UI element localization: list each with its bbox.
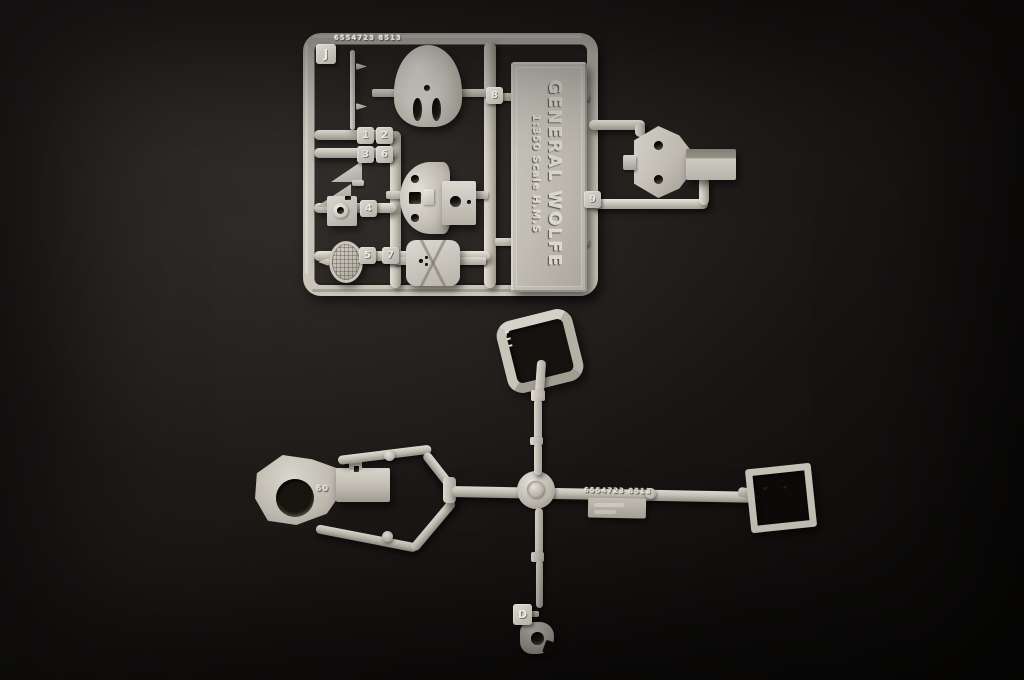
tab-number: 9 [589,194,596,205]
hatch-dot [419,259,423,263]
frame-hole [762,484,767,489]
vertical-arm-top2 [534,399,542,441]
barbette-slot [409,192,421,204]
sprue-gate [372,89,396,97]
tag-emboss-line [594,510,616,514]
runner-lower [592,199,708,209]
part-hatch [406,240,460,286]
barbette-step [423,189,434,205]
tab-number: 6 [381,149,388,160]
part-tab-4: 4 [360,200,377,217]
tab-number: 5 [364,250,371,261]
vertical-arm-bottom2 [536,560,543,608]
bracket-tab [623,155,636,170]
deck-hole [450,196,461,207]
sprue-d-mold-code: 6554723 8513 [584,486,652,495]
part-bracket-trough [686,149,736,180]
part-tab-5: 5 [359,247,376,264]
bracket-hole [654,175,663,184]
nameplate-subtitle: 1:350 Scale H.M.S [530,114,541,233]
vertical-arm-bottom1 [535,508,543,556]
barbette-hole [411,214,419,222]
sprue-j-mold-code: 6554723 8513 [334,34,402,42]
part-tab-8: 8 [486,87,503,104]
deck-dot [467,200,471,204]
runner-node [382,531,393,542]
frame-hole [782,483,787,488]
sprue-letter: J [324,47,328,61]
part-tab-6: 6 [376,146,393,163]
block-notch [354,466,359,472]
part-nameplate: GENERAL WOLFE 1:350 Scale H.M.S [511,62,587,292]
sprue-gate [460,89,486,97]
part-tab-3: 3 [357,146,374,163]
teardrop-part-number: 60 [316,484,329,493]
part-bracket [634,126,692,198]
cross-hub-boss [527,481,544,498]
hatch-dot [425,256,428,259]
hatch-dot [425,263,428,266]
barbette-hole [411,175,419,183]
loop-arm-lower-left [315,524,418,552]
clamp-hole [531,632,544,645]
material-tag [588,497,646,518]
part-block [336,468,390,502]
runner-node [384,450,395,461]
dome-slot [413,98,422,121]
nameplate-title: GENERAL WOLFE [544,80,564,268]
photo-of-model-kit-sprues: 6554723 8513 J 1 2 3 6 4 5 7 8 9 [0,0,1024,680]
tab-number: 4 [365,203,372,214]
part-square-frame [745,463,817,534]
sprue-gate [456,257,486,265]
part-mast-rod [350,50,355,130]
loop-arm-lower-right [410,498,457,552]
runner-lower-elbow [699,177,709,205]
sprue-d-letter-tab: D [513,604,532,625]
tab-number: 1 [362,130,369,141]
dome-hole [424,85,430,91]
part-tab-9: 9 [584,191,601,208]
part-tab-1: 1 [357,127,374,144]
tag-emboss-line [594,503,624,507]
sprue-letter: D [518,608,527,621]
bracket-hole [654,141,663,150]
tab-number: 8 [491,90,498,101]
sprue-gate [352,180,364,186]
tab-number: 2 [381,130,388,141]
sprue-j-letter-tab: J [316,44,336,64]
nameplate-rotated-text: GENERAL WOLFE 1:350 Scale H.M.S [513,61,581,287]
tab-number: 7 [387,250,394,261]
part-oval-grate [329,241,363,283]
part-tab-2: 2 [376,127,393,144]
tab-number: 3 [362,149,369,160]
vertical-arm-top3 [534,443,542,475]
square-notch [345,196,351,200]
teardrop-hole [276,479,314,517]
part-tab-7: 7 [382,247,399,264]
boss-hole [337,207,344,214]
dome-slot [432,98,441,121]
